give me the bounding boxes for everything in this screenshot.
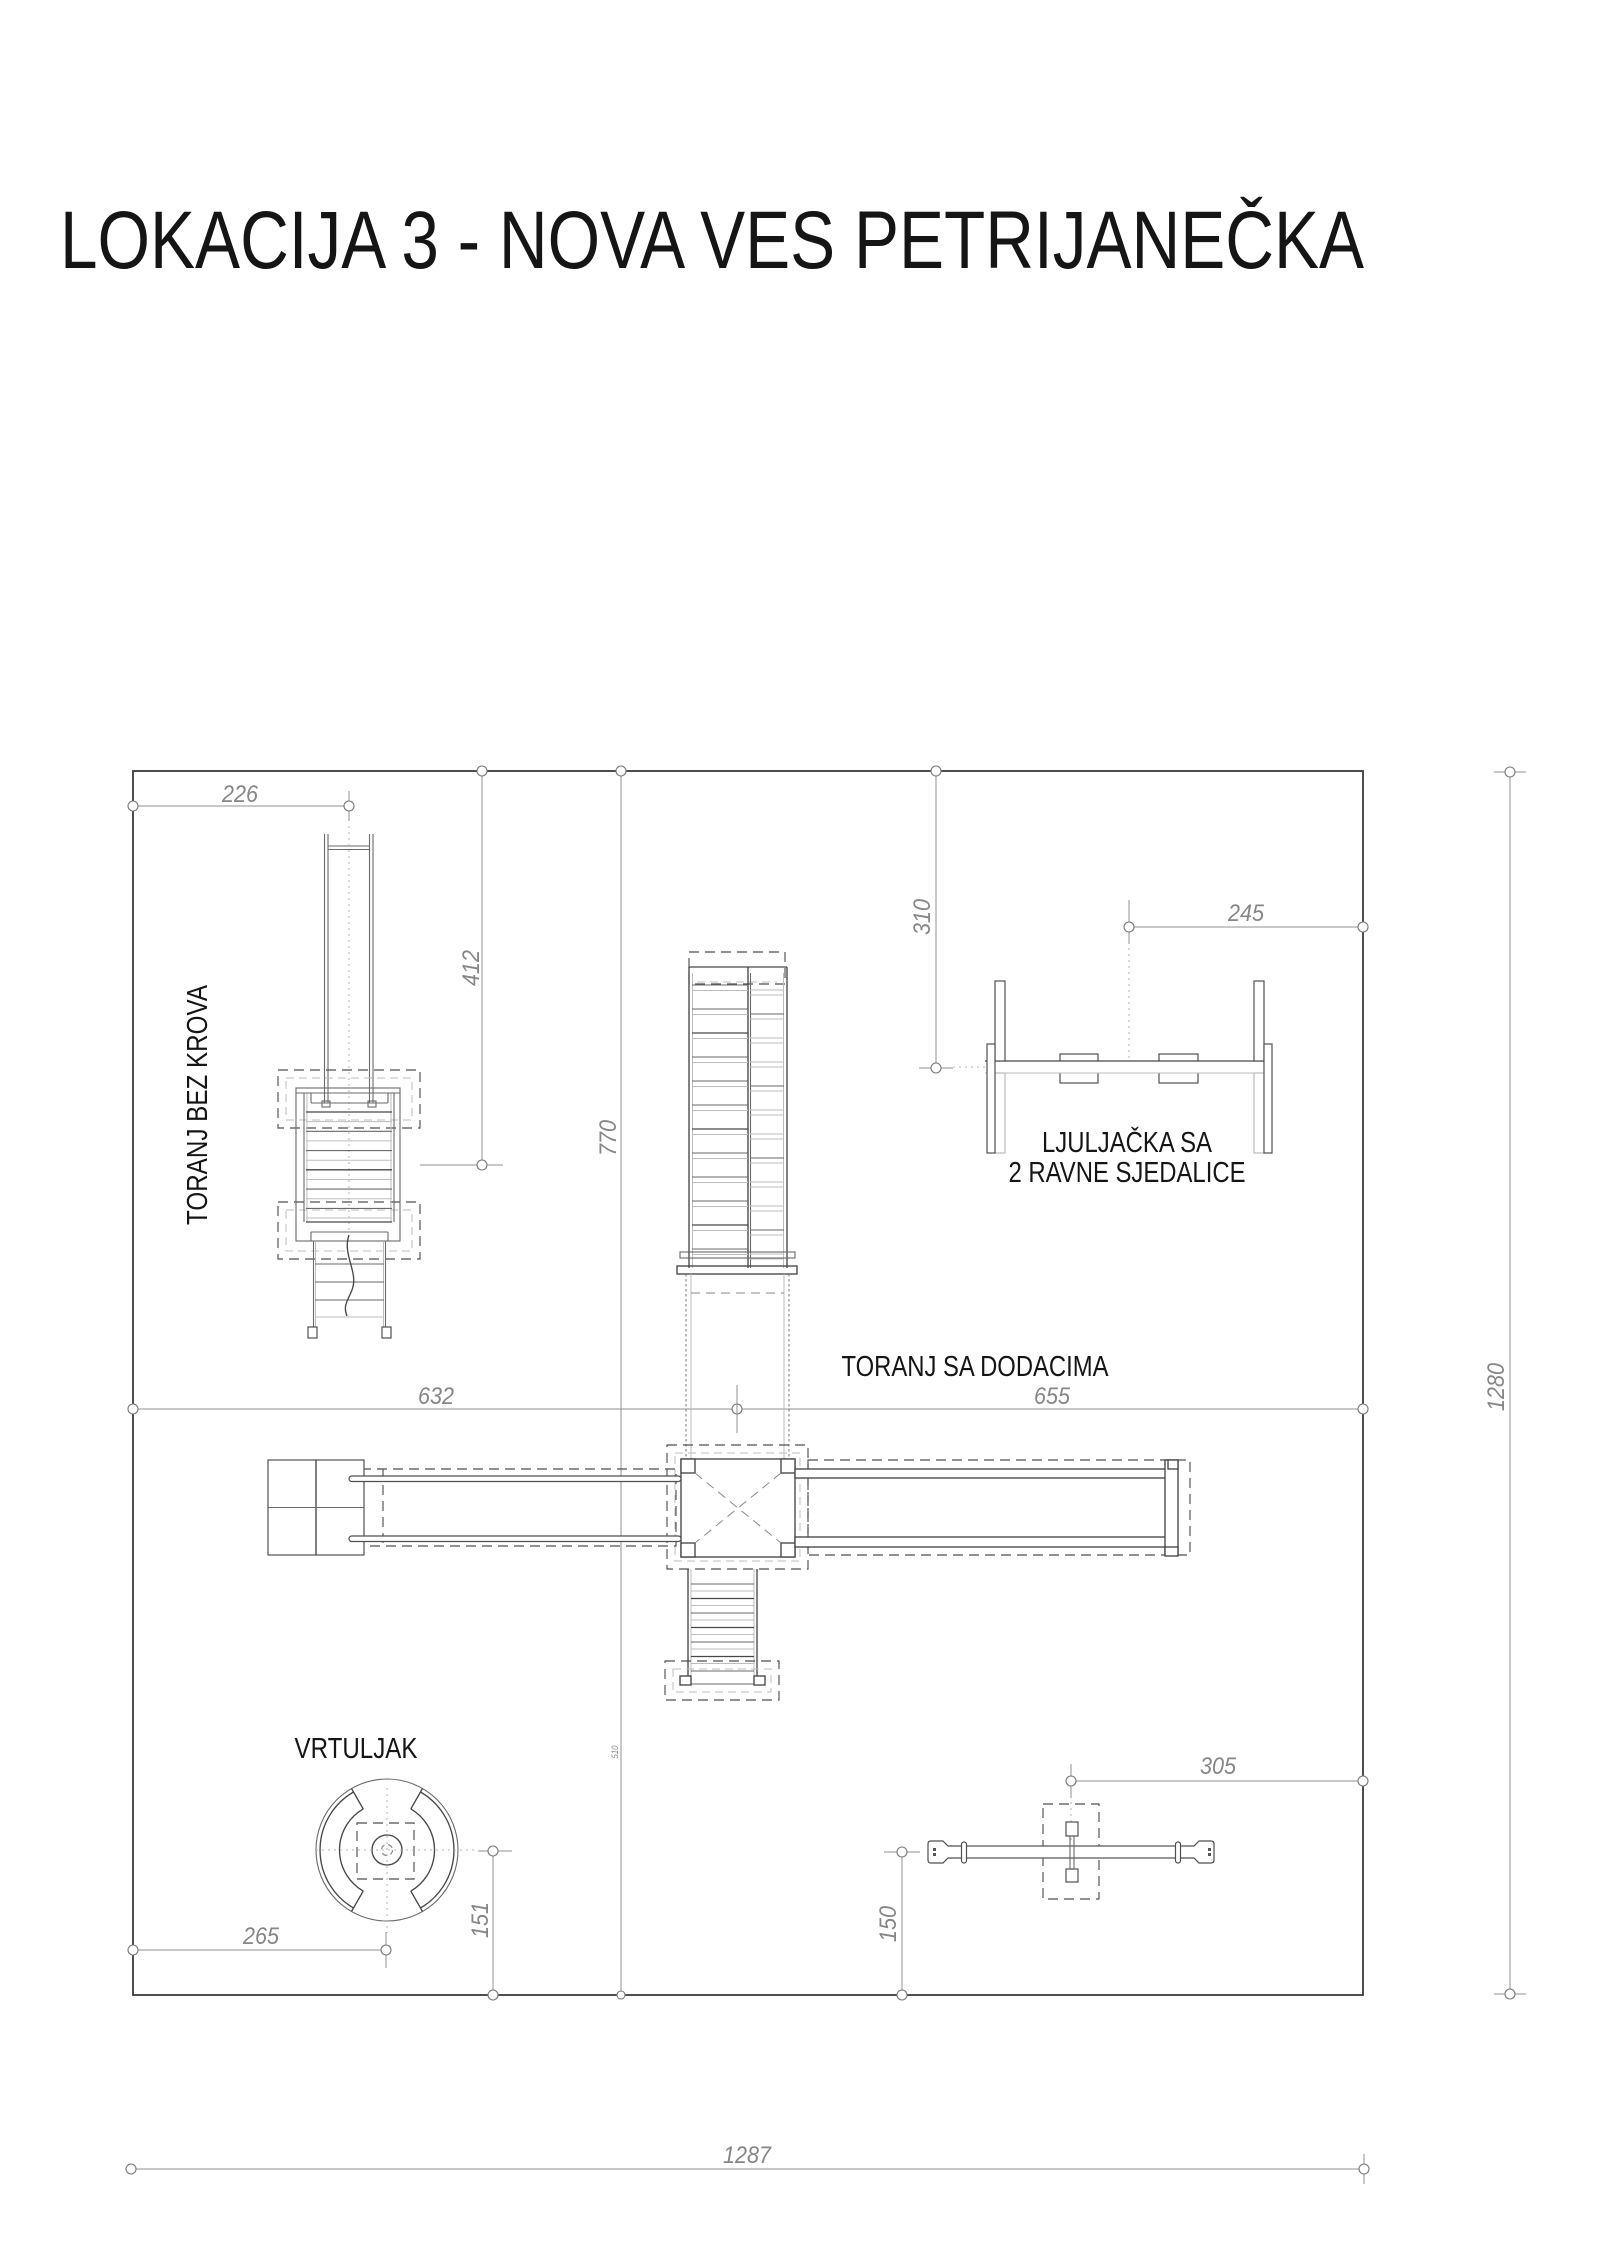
svg-text:1287: 1287 xyxy=(723,2142,772,2169)
svg-text:632: 632 xyxy=(418,1383,454,1410)
svg-text:LOKACIJA 3 - NOVA VES PETRIJAN: LOKACIJA 3 - NOVA VES PETRIJANEČKA xyxy=(60,195,1364,286)
svg-text:510: 510 xyxy=(610,1746,620,1759)
svg-text:245: 245 xyxy=(1227,900,1264,927)
svg-text:VRTULJAK: VRTULJAK xyxy=(295,1733,419,1765)
svg-text:305: 305 xyxy=(1200,1753,1237,1780)
svg-text:770: 770 xyxy=(595,1119,622,1156)
svg-text:310: 310 xyxy=(909,898,936,935)
svg-text:265: 265 xyxy=(242,1923,279,1950)
svg-text:2 RAVNE SJEDALICE: 2 RAVNE SJEDALICE xyxy=(1009,1157,1246,1189)
svg-text:TORANJ SA DODACIMA: TORANJ SA DODACIMA xyxy=(842,1351,1110,1383)
svg-text:226: 226 xyxy=(221,781,258,808)
svg-text:LJULJAČKA SA: LJULJAČKA SA xyxy=(1042,1125,1213,1159)
svg-text:151: 151 xyxy=(467,1902,494,1938)
svg-text:412: 412 xyxy=(458,950,485,986)
svg-text:TORANJ BEZ KROVA: TORANJ BEZ KROVA xyxy=(182,984,214,1225)
svg-text:150: 150 xyxy=(875,1905,902,1942)
svg-text:655: 655 xyxy=(1034,1383,1071,1410)
svg-text:1280: 1280 xyxy=(1483,1362,1510,1411)
